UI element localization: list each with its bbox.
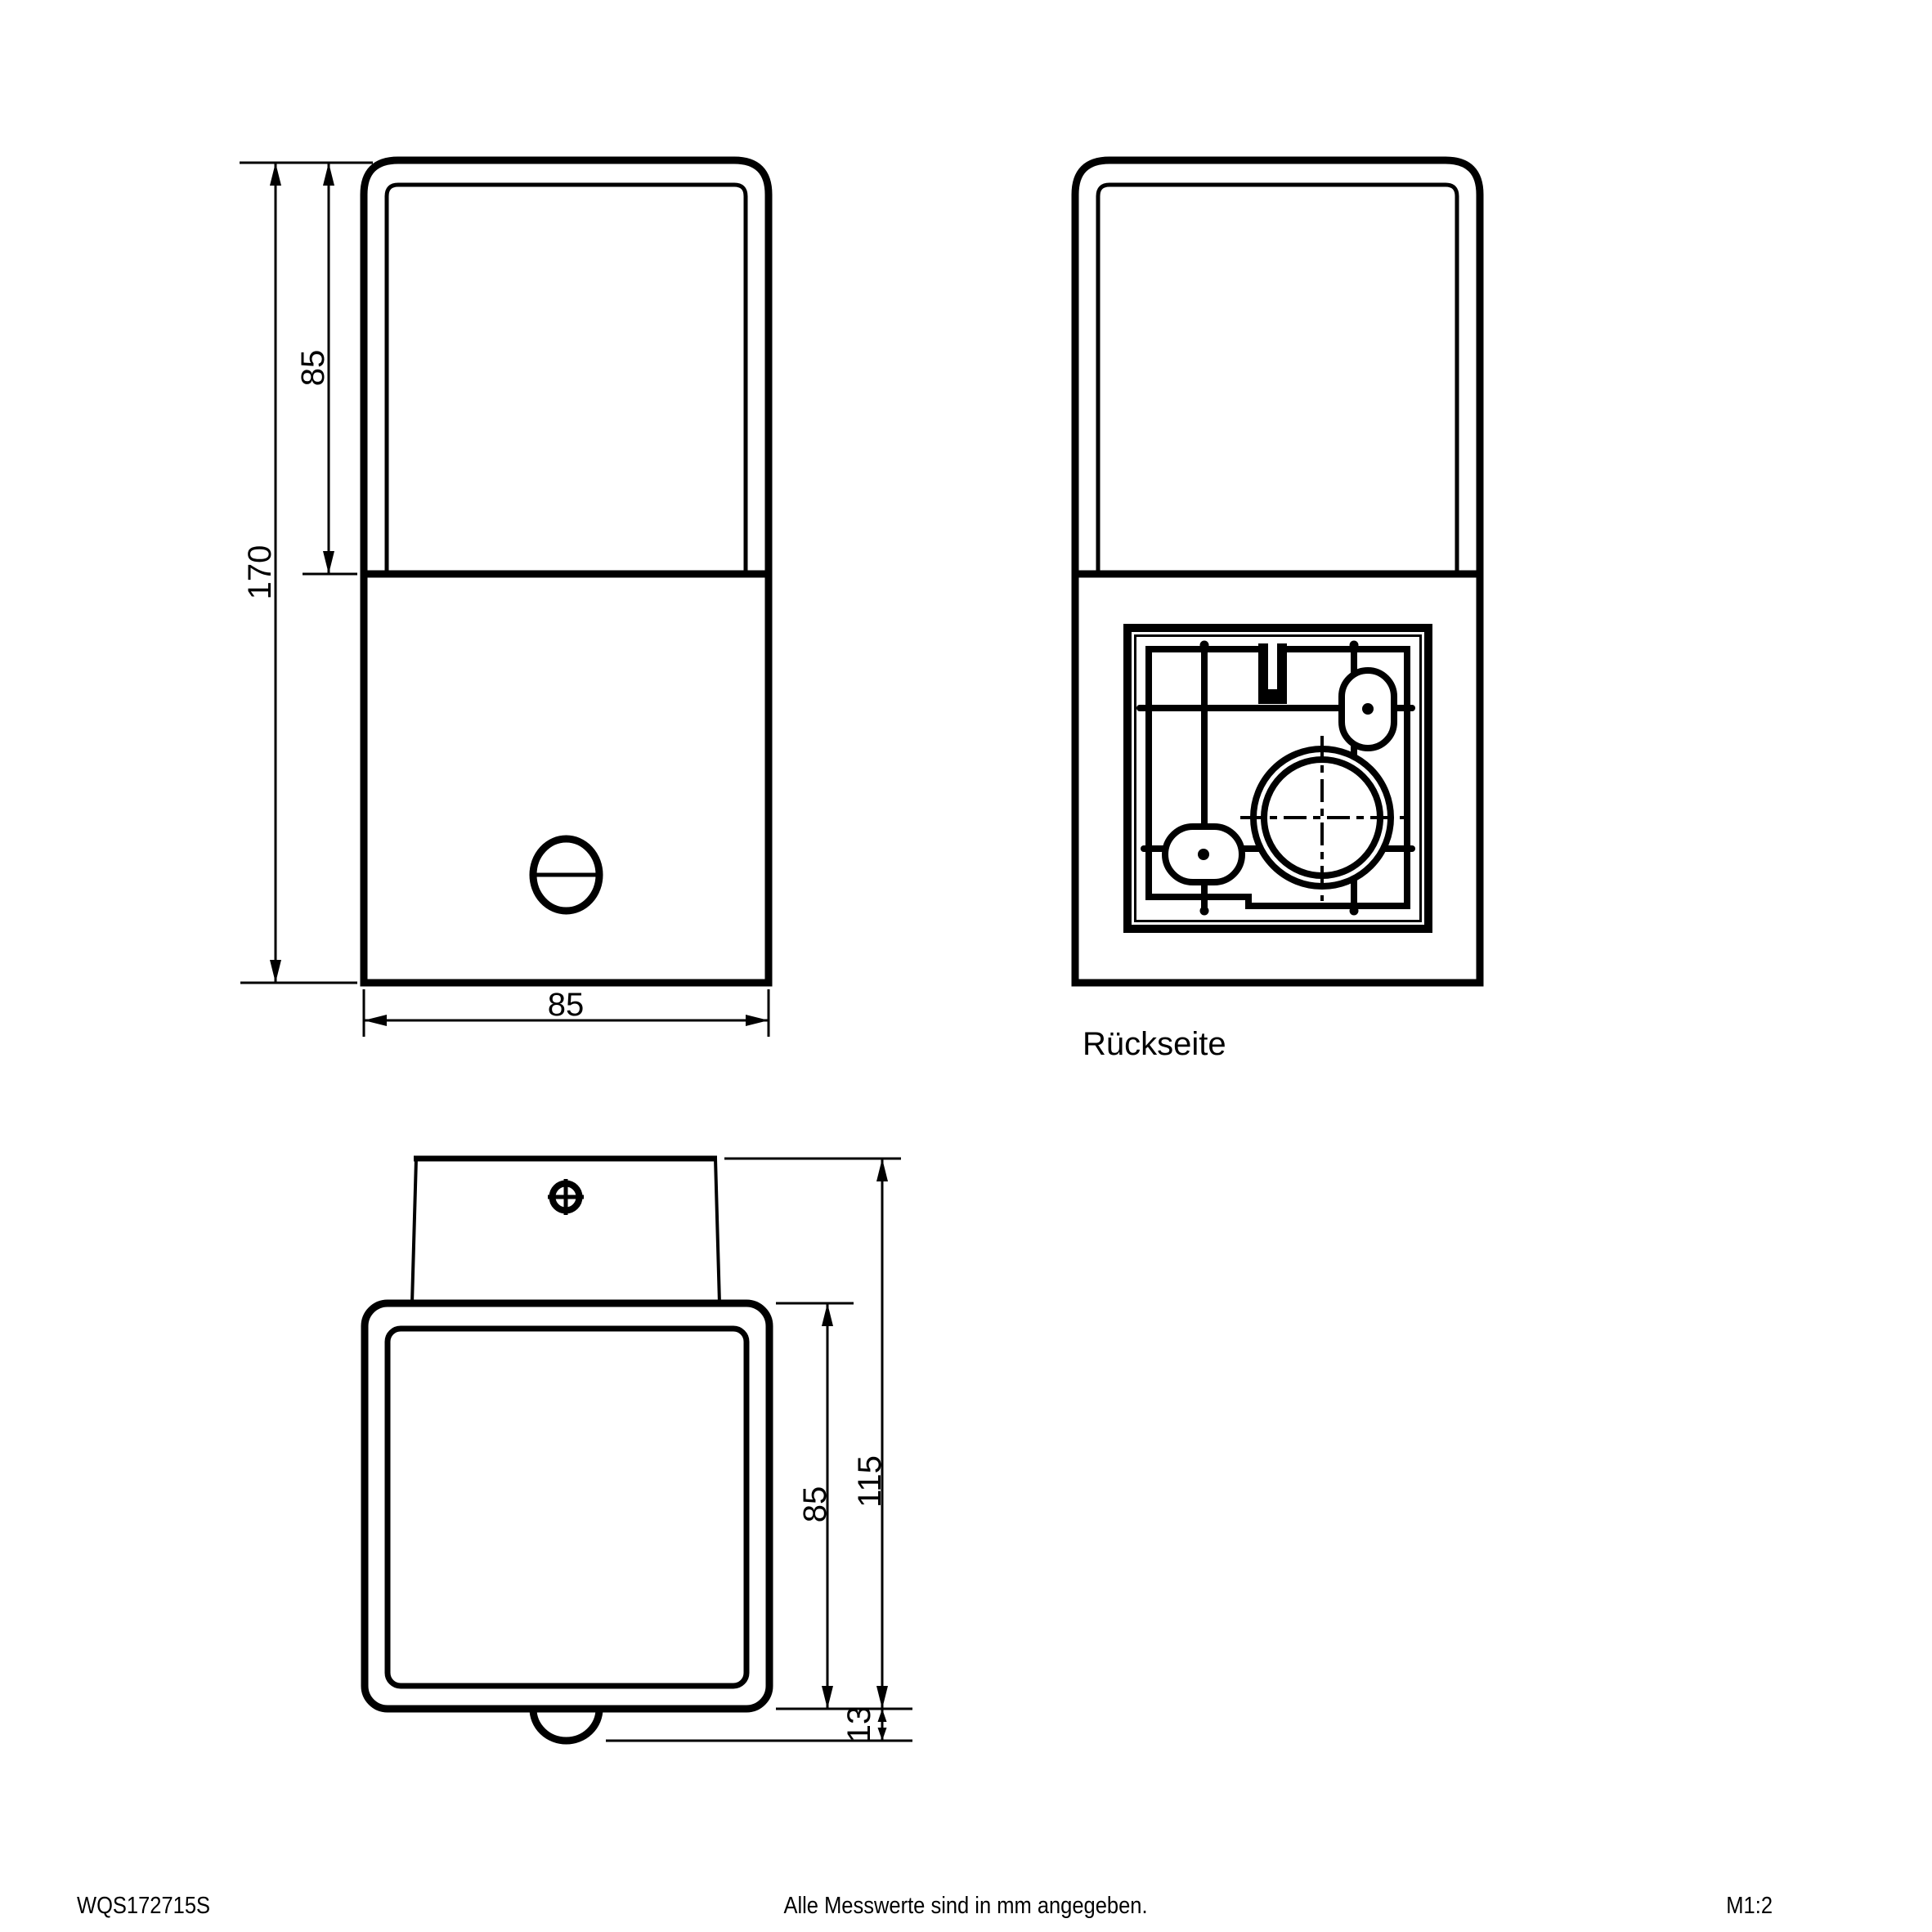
screw-slot-dot xyxy=(1198,849,1209,860)
plate-clip-block xyxy=(1258,689,1287,704)
top-view xyxy=(365,1159,912,1741)
scale-label: M1:2 xyxy=(1726,1891,1773,1918)
dim-label-total-height: 170 xyxy=(242,545,278,600)
sensor-dome xyxy=(533,1709,599,1741)
dim-label-body-depth: 85 xyxy=(797,1486,833,1523)
dim-label-total-depth: 115 xyxy=(852,1455,888,1508)
rib-dot xyxy=(1350,907,1359,916)
front-view xyxy=(240,160,769,1037)
screw-slot-dot xyxy=(1362,703,1374,715)
dim-label-lens-height: 85 xyxy=(295,350,331,387)
measurement-note: Alle Messwerte sind in mm angegeben. xyxy=(783,1891,1147,1918)
dim-label-width: 85 xyxy=(548,987,585,1023)
footer: WQS172715S Alle Messwerte sind in mm ang… xyxy=(77,1891,1773,1918)
dim-label-sensor-depth: 13 xyxy=(841,1706,877,1743)
drawing-svg: 170 85 85 xyxy=(0,0,1932,1932)
top-body-outline xyxy=(365,1303,769,1709)
mounting-plate xyxy=(1127,628,1428,929)
technical-drawing-page: 170 85 85 xyxy=(0,0,1932,1932)
rib-dot xyxy=(1350,641,1359,650)
back-view xyxy=(1075,160,1480,983)
article-number: WQS172715S xyxy=(77,1891,210,1918)
rib-dot xyxy=(1200,641,1209,650)
rib-dot xyxy=(1200,907,1209,916)
back-view-caption: Rückseite xyxy=(1083,1026,1226,1062)
